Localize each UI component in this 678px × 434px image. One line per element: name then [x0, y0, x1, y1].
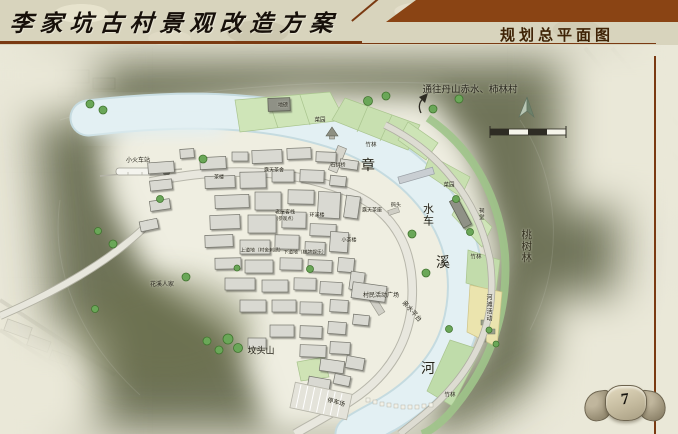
slide: 通往丹山赤水、柿林村章水车溪河桃树林坟头山小火车站花溪人家竹林竹林竹林菜园菜园地…	[0, 0, 678, 434]
fentou-hill-shading	[77, 274, 253, 386]
header-top-bar	[386, 0, 678, 22]
slide-header: 李家坑古村景观改造方案 规划总平面图	[0, 0, 678, 45]
page-title: 李家坑古村景观改造方案	[9, 4, 341, 38]
right-divider-line	[654, 56, 656, 434]
section-title: 规划总平面图	[500, 24, 614, 45]
page-number-emblem: 7	[584, 383, 666, 425]
title-underline	[0, 41, 362, 44]
site-plan-map	[0, 0, 678, 434]
